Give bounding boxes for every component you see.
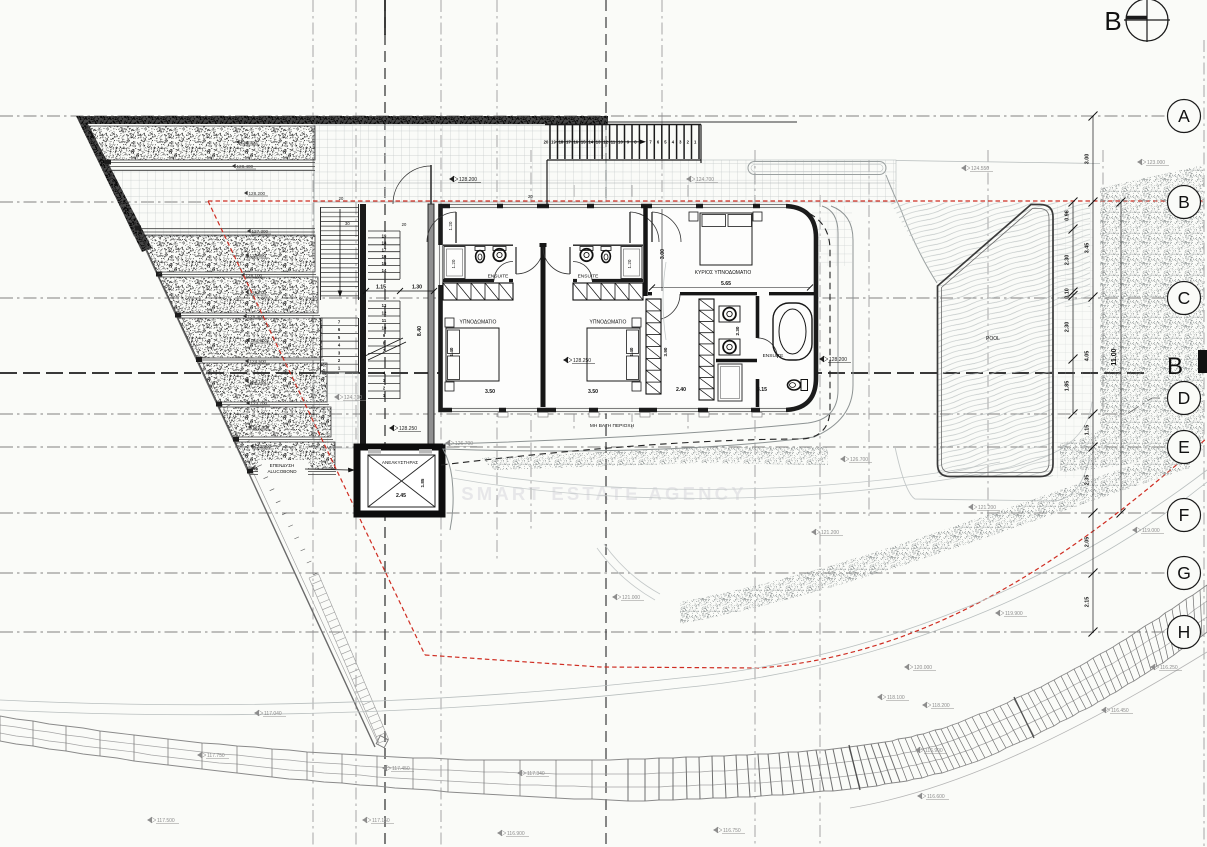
- svg-text:3.00: 3.00: [1085, 154, 1091, 165]
- svg-text:116.750: 116.750: [723, 828, 741, 834]
- svg-text:1.40: 1.40: [449, 347, 454, 356]
- svg-text:2.15: 2.15: [1085, 597, 1091, 608]
- svg-text:B: B: [1178, 192, 1190, 212]
- svg-text:3.90: 3.90: [663, 347, 668, 356]
- svg-text:123.700: 123.700: [251, 401, 268, 406]
- svg-text:1.20: 1.20: [448, 221, 453, 230]
- svg-text:124.100: 124.100: [250, 379, 267, 384]
- svg-text:2.30: 2.30: [735, 326, 740, 335]
- svg-text:123.000: 123.000: [1147, 160, 1165, 166]
- svg-text:3.45: 3.45: [1085, 243, 1091, 254]
- svg-text:30: 30: [345, 221, 350, 226]
- svg-text:19: 19: [551, 140, 556, 145]
- svg-text:2.05: 2.05: [1085, 537, 1091, 548]
- svg-text:A: A: [1178, 106, 1190, 126]
- svg-text:3.00: 3.00: [660, 249, 666, 259]
- svg-text:B: B: [1167, 353, 1183, 380]
- svg-text:117.040: 117.040: [264, 711, 282, 717]
- svg-text:117.340: 117.340: [527, 771, 545, 777]
- svg-text:17: 17: [382, 247, 387, 252]
- svg-text:20: 20: [528, 194, 533, 199]
- svg-text:4.05: 4.05: [1085, 351, 1091, 362]
- svg-text:124.700: 124.700: [696, 177, 714, 183]
- svg-text:2.45: 2.45: [396, 493, 406, 499]
- svg-text:124.900: 124.900: [251, 338, 268, 343]
- svg-text:126.700: 126.700: [850, 457, 868, 463]
- svg-text:1.85: 1.85: [1065, 381, 1071, 392]
- svg-text:127.300: 127.300: [252, 229, 269, 234]
- svg-text:ALUCOBOND: ALUCOBOND: [267, 469, 297, 474]
- svg-text:121.000: 121.000: [622, 595, 640, 601]
- svg-text:E: E: [1178, 437, 1190, 457]
- svg-text:128.400: 128.400: [237, 164, 254, 169]
- svg-text:H: H: [1178, 622, 1191, 642]
- svg-text:3.15: 3.15: [757, 387, 767, 393]
- svg-text:128.200: 128.200: [829, 357, 847, 363]
- svg-text:3.50: 3.50: [485, 389, 495, 395]
- svg-text:2.40: 2.40: [676, 387, 686, 393]
- svg-text:C: C: [1178, 288, 1191, 308]
- svg-text:129.700: 129.700: [241, 140, 258, 145]
- svg-text:2.30: 2.30: [1065, 322, 1071, 333]
- svg-text:15: 15: [382, 261, 387, 266]
- svg-text:120.000: 120.000: [914, 665, 932, 671]
- svg-text:122.900: 122.900: [255, 444, 272, 449]
- svg-text:124.500: 124.500: [250, 359, 267, 364]
- svg-text:128.250: 128.250: [573, 358, 591, 364]
- svg-text:128.200: 128.200: [459, 177, 477, 183]
- svg-text:3.50: 3.50: [588, 389, 598, 395]
- svg-text:116.450: 116.450: [1111, 708, 1129, 714]
- svg-text:116.250: 116.250: [1160, 665, 1178, 671]
- svg-text:B: B: [1104, 6, 1121, 36]
- svg-text:14: 14: [382, 268, 387, 273]
- svg-text:117.500: 117.500: [157, 818, 175, 824]
- svg-text:18: 18: [382, 240, 387, 245]
- svg-text:11.00: 11.00: [1111, 348, 1118, 365]
- svg-text:121.200: 121.200: [821, 530, 839, 536]
- svg-text:124.700: 124.700: [344, 395, 362, 401]
- svg-text:126.700: 126.700: [455, 441, 473, 447]
- svg-text:19: 19: [382, 234, 387, 239]
- svg-text:1.15: 1.15: [376, 285, 386, 291]
- svg-text:POOL: POOL: [986, 336, 1000, 342]
- svg-text:10: 10: [382, 326, 387, 331]
- svg-text:ENSUITE: ENSUITE: [763, 353, 784, 359]
- svg-text:0.10: 0.10: [1065, 288, 1071, 299]
- svg-text:ΚΥΡΙΟΣ ΥΠΝΟΔΩΜΑΤΙΟ: ΚΥΡΙΟΣ ΥΠΝΟΔΩΜΑΤΙΟ: [695, 270, 752, 276]
- svg-text:5.65: 5.65: [721, 281, 731, 287]
- svg-text:116.600: 116.600: [927, 794, 945, 800]
- svg-text:D: D: [1178, 388, 1191, 408]
- svg-text:124.550: 124.550: [971, 166, 989, 172]
- svg-text:118.200: 118.200: [932, 703, 950, 709]
- svg-text:126.500: 126.500: [250, 253, 267, 258]
- svg-text:11: 11: [382, 318, 387, 323]
- svg-text:116.900: 116.900: [507, 831, 525, 837]
- svg-text:1.20: 1.20: [627, 259, 632, 268]
- svg-text:118.100: 118.100: [887, 695, 905, 701]
- svg-text:128.200: 128.200: [249, 191, 266, 196]
- svg-text:119.900: 119.900: [1005, 611, 1023, 617]
- svg-text:1.30: 1.30: [412, 285, 422, 291]
- svg-text:125.300: 125.300: [248, 314, 265, 319]
- svg-text:20: 20: [544, 140, 549, 145]
- svg-text:8.40: 8.40: [417, 326, 423, 336]
- svg-text:119.000: 119.000: [1142, 528, 1160, 534]
- svg-text:117.750: 117.750: [207, 753, 225, 759]
- svg-text:ΥΠΝΟΔΩΜΑΤΙΟ: ΥΠΝΟΔΩΜΑΤΙΟ: [590, 320, 627, 326]
- svg-text:13: 13: [382, 303, 387, 308]
- svg-text:116.900: 116.900: [925, 748, 943, 754]
- svg-text:ΜΗ ΒΑΤΗ ΠΕΡΙΟΧΗ: ΜΗ ΒΑΤΗ ΠΕΡΙΟΧΗ: [590, 423, 635, 429]
- svg-text:ΥΠΝΟΔΩΜΑΤΙΟ: ΥΠΝΟΔΩΜΑΤΙΟ: [460, 320, 497, 326]
- svg-text:128.250: 128.250: [399, 426, 417, 432]
- svg-text:0.96: 0.96: [1065, 210, 1071, 221]
- svg-text:1.40: 1.40: [629, 347, 634, 356]
- svg-text:ENSUITE: ENSUITE: [488, 274, 509, 280]
- svg-text:20: 20: [402, 222, 407, 227]
- svg-text:12: 12: [382, 311, 387, 316]
- svg-text:1.15: 1.15: [1085, 425, 1091, 436]
- svg-text:117.450: 117.450: [392, 766, 410, 772]
- svg-text:121.200: 121.200: [978, 505, 996, 511]
- svg-text:2.35: 2.35: [1085, 475, 1091, 486]
- svg-text:ENSUITE: ENSUITE: [578, 274, 599, 280]
- svg-text:16: 16: [382, 254, 387, 259]
- svg-text:1.20: 1.20: [451, 259, 456, 268]
- svg-text:1.85: 1.85: [420, 478, 425, 487]
- svg-text:123.300: 123.300: [253, 425, 270, 430]
- svg-text:117.150: 117.150: [372, 818, 390, 824]
- svg-text:ΕΠΕΝΔΥΣΗ: ΕΠΕΝΔΥΣΗ: [270, 463, 295, 468]
- svg-text:20: 20: [339, 196, 344, 201]
- svg-text:2.30: 2.30: [1065, 255, 1071, 266]
- svg-text:F: F: [1179, 505, 1190, 525]
- svg-text:ΑΝΕΛΚΥΣΤΗΡΑΣ: ΑΝΕΛΚΥΣΤΗΡΑΣ: [382, 460, 418, 465]
- svg-text:126.100: 126.100: [246, 273, 263, 278]
- svg-text:G: G: [1177, 563, 1191, 583]
